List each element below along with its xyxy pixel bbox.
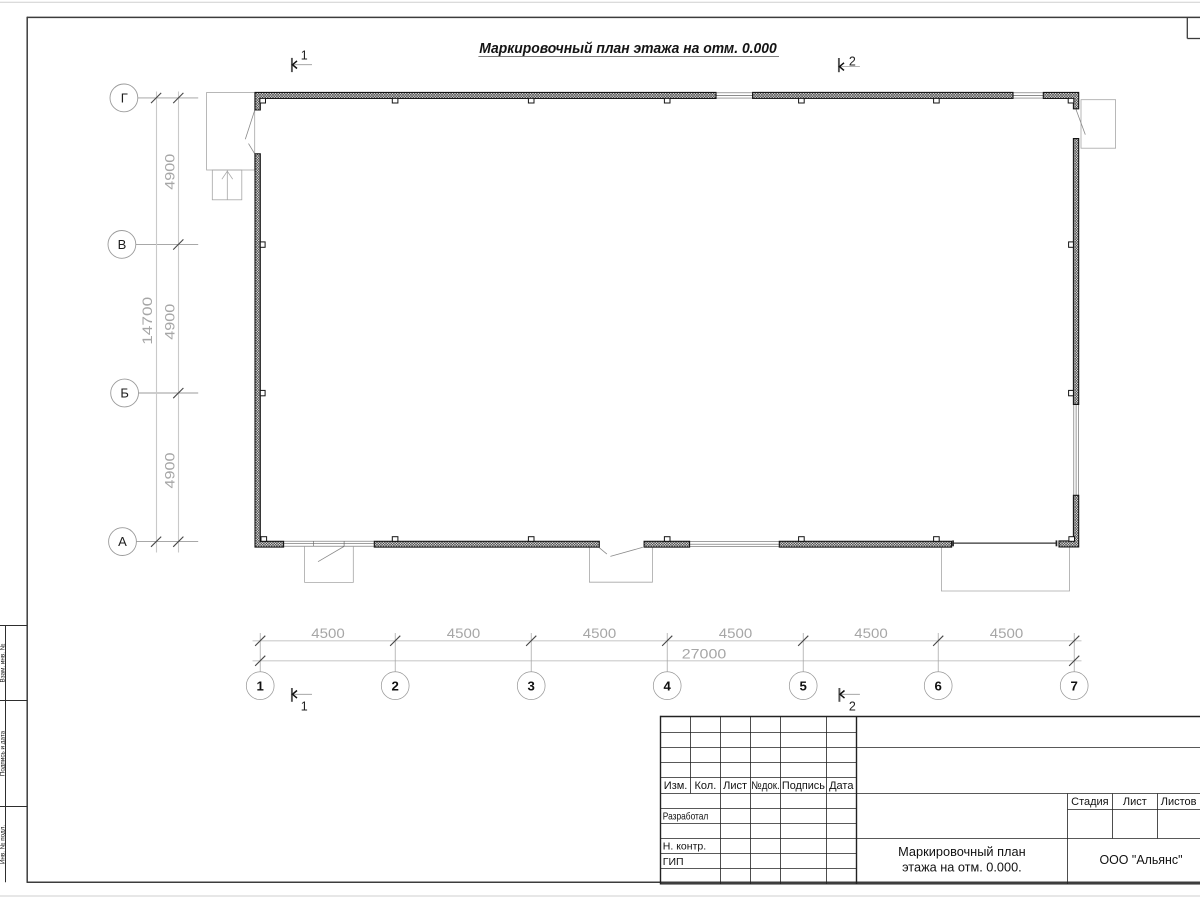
svg-text:Г: Г [121,91,128,106]
svg-text:1: 1 [301,699,308,713]
svg-text:Лист: Лист [1123,796,1147,808]
svg-text:Подпись: Подпись [782,780,825,792]
svg-text:Н. контр.: Н. контр. [663,841,706,853]
svg-text:4500: 4500 [719,625,753,641]
svg-text:этажа на отм. 0.000.: этажа на отм. 0.000. [902,859,1022,874]
svg-text:4500: 4500 [854,625,888,641]
svg-text:5: 5 [800,679,807,694]
svg-text:3: 3 [528,679,535,694]
svg-text:4900: 4900 [161,452,177,488]
svg-text:Б: Б [120,386,129,401]
svg-text:Лист: Лист [723,780,747,792]
svg-text:4: 4 [664,679,672,694]
svg-text:4500: 4500 [990,625,1024,641]
svg-text:А: А [118,534,127,549]
svg-text:Инв. № подл.: Инв. № подл. [0,825,7,864]
svg-text:Разработал: Разработал [663,810,709,822]
svg-text:2: 2 [849,54,856,68]
svg-text:1: 1 [257,679,264,694]
svg-text:4500: 4500 [447,625,481,641]
svg-text:Взам. инв. №: Взам. инв. № [0,643,7,682]
svg-text:Маркировочный план этажа на от: Маркировочный план этажа на отм. 0.000 [479,40,777,57]
svg-text:7: 7 [1071,679,1078,694]
svg-text:4500: 4500 [311,625,345,641]
svg-text:№док.: №док. [751,780,780,792]
svg-text:14700: 14700 [139,297,155,345]
svg-text:1: 1 [301,49,308,63]
svg-text:ООО "Альянс": ООО "Альянс" [1100,852,1183,867]
svg-text:В: В [118,237,127,252]
svg-text:Маркировочный план: Маркировочный план [898,844,1026,859]
svg-text:Листов: Листов [1161,796,1197,808]
svg-text:ГИП: ГИП [663,856,684,868]
svg-text:6: 6 [935,679,942,694]
svg-text:Кол.: Кол. [695,780,717,792]
svg-text:4500: 4500 [583,625,617,641]
svg-text:27000: 27000 [682,646,727,662]
svg-text:Подпись и дата: Подпись и дата [0,730,7,776]
svg-text:2: 2 [392,679,399,694]
svg-text:4900: 4900 [161,304,177,340]
svg-text:Стадия: Стадия [1071,796,1109,808]
svg-text:Дата: Дата [829,780,854,792]
svg-text:4900: 4900 [161,154,177,190]
svg-text:Изм.: Изм. [664,780,688,792]
svg-text:2: 2 [849,699,856,713]
